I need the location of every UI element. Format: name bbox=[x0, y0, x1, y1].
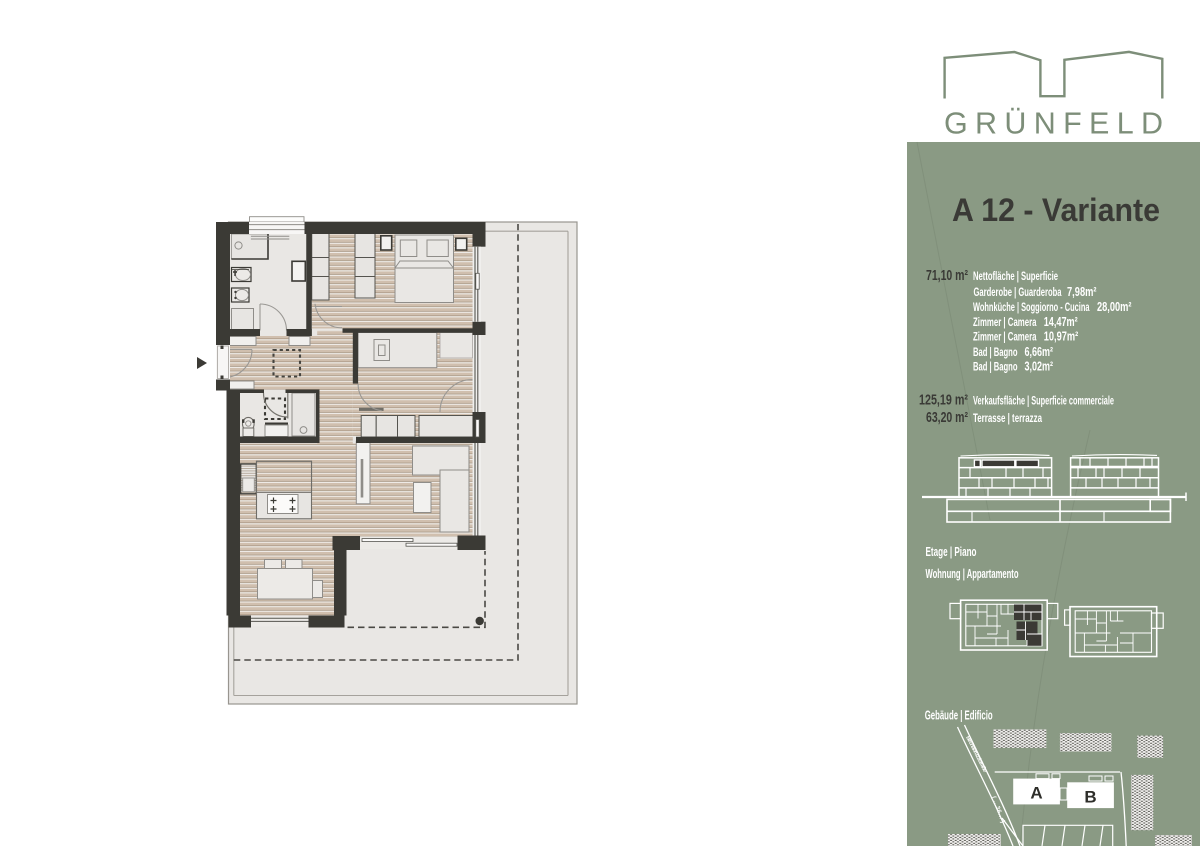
svg-text:Zimmer | Camera: Zimmer | Camera bbox=[973, 332, 1037, 344]
svg-text:B: B bbox=[1084, 788, 1096, 807]
svg-text:Wohnung | Appartamento: Wohnung | Appartamento bbox=[926, 567, 1019, 581]
svg-text:6,66m²: 6,66m² bbox=[1025, 345, 1054, 359]
svg-text:Zimmer | Camera: Zimmer | Camera bbox=[973, 317, 1037, 329]
svg-text:71,10 m²: 71,10 m² bbox=[926, 268, 968, 284]
svg-text:28,00m²: 28,00m² bbox=[1097, 300, 1132, 314]
svg-text:A: A bbox=[1030, 784, 1042, 803]
svg-text:Terrasse | terrazza: Terrasse | terrazza bbox=[973, 413, 1042, 425]
svg-text:Bad | Bagno: Bad | Bagno bbox=[973, 347, 1018, 359]
svg-text:125,19 m²: 125,19 m² bbox=[919, 393, 968, 409]
svg-text:14,47m²: 14,47m² bbox=[1044, 315, 1078, 329]
svg-text:3,02m²: 3,02m² bbox=[1025, 360, 1054, 374]
svg-text:A 12 - Variante: A 12 - Variante bbox=[952, 192, 1160, 228]
svg-text:10,97m²: 10,97m² bbox=[1044, 330, 1079, 344]
svg-text:63,20 m²: 63,20 m² bbox=[926, 410, 968, 426]
svg-text:Garderobe | Guarderoba: Garderobe | Guarderoba bbox=[974, 287, 1062, 299]
svg-text:Wohnküche | Soggiorno - Cucin: Wohnküche | Soggiorno - Cucina bbox=[973, 302, 1090, 314]
svg-text:Bad | Bagno: Bad | Bagno bbox=[973, 362, 1018, 374]
svg-text:Verkaufsfläche | Superficie c: Verkaufsfläche | Superficie commerciale bbox=[973, 396, 1114, 408]
svg-text:GRÜNFELD: GRÜNFELD bbox=[944, 107, 1163, 141]
svg-text:Nettofläche | Superficie: Nettofläche | Superficie bbox=[973, 271, 1058, 283]
svg-text:Etage | Piano: Etage | Piano bbox=[926, 545, 977, 559]
svg-text:7,98m²: 7,98m² bbox=[1067, 285, 1097, 299]
svg-text:Gebäude | Edificio: Gebäude | Edificio bbox=[925, 709, 993, 723]
